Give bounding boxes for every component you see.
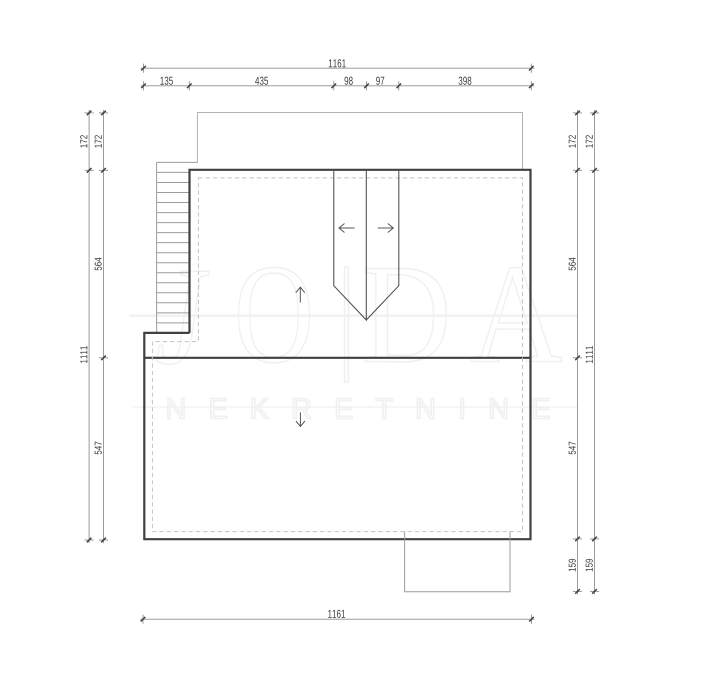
svg-text:A: A [470, 236, 562, 393]
svg-text:NEKRETNINE: NEKRETNINE [166, 394, 573, 426]
svg-text:D: D [362, 235, 451, 393]
svg-text:O: O [234, 235, 314, 392]
